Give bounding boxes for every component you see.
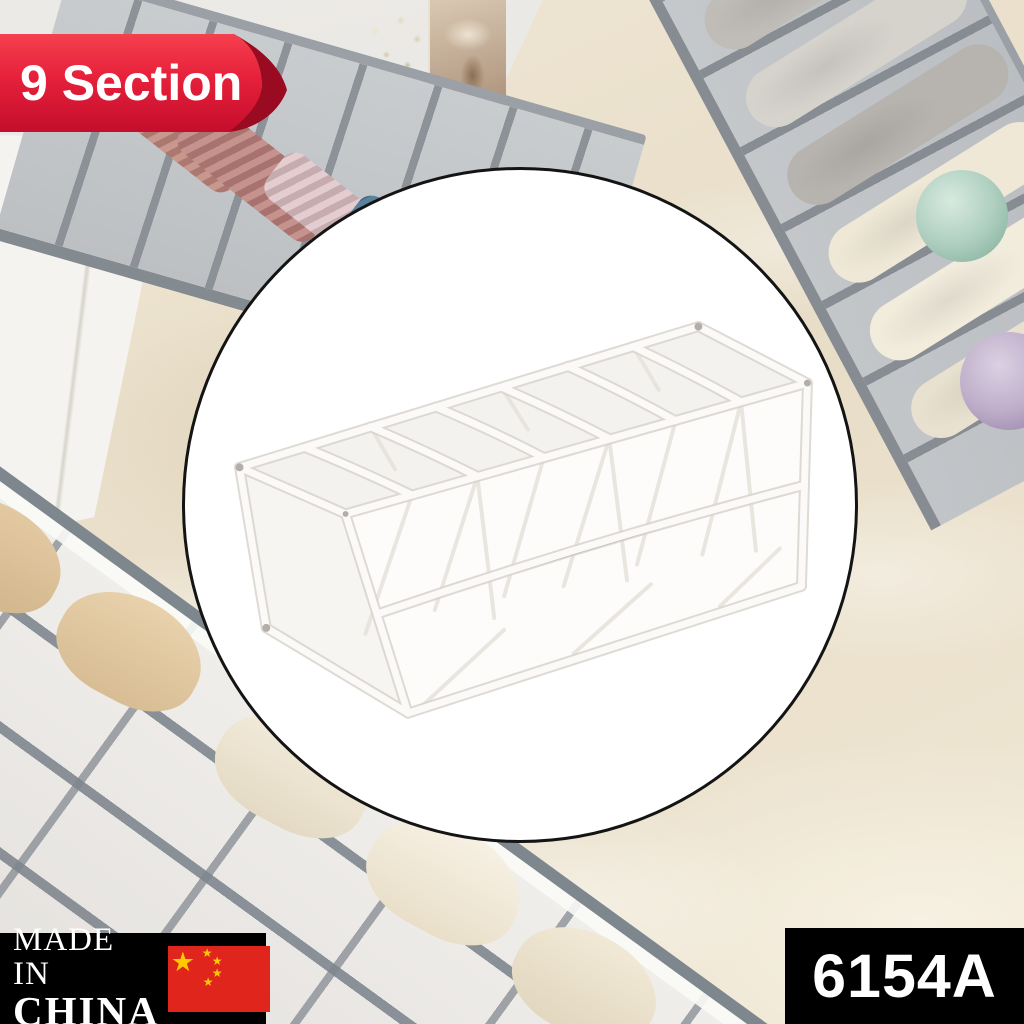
flag-star-icon: ★ xyxy=(203,976,214,988)
mesh-organizer-illustration xyxy=(185,170,855,840)
china-flag-icon: ★ ★ ★ ★ ★ xyxy=(168,946,270,1012)
product-image: 9 Section MADE IN CHINA ★ ★ ★ ★ ★ 6154A xyxy=(0,0,1024,1024)
pompom-flower-mint xyxy=(916,170,1008,262)
product-code-label: 6154A xyxy=(812,941,997,1011)
section-ribbon: 9 Section xyxy=(0,31,290,135)
made-in-china-text: MADE IN CHINA xyxy=(13,924,160,1024)
product-code-badge: 6154A xyxy=(785,928,1024,1024)
made-in-china-badge: MADE IN CHINA ★ ★ ★ ★ ★ xyxy=(0,933,266,1024)
flag-star-icon: ★ xyxy=(171,949,195,976)
ribbon-label: 9 Section xyxy=(20,31,242,135)
made-in-label: MADE IN xyxy=(13,924,160,991)
product-highlight-circle xyxy=(182,167,858,843)
flag-star-icon: ★ xyxy=(212,955,223,967)
china-label: CHINA xyxy=(13,991,160,1024)
